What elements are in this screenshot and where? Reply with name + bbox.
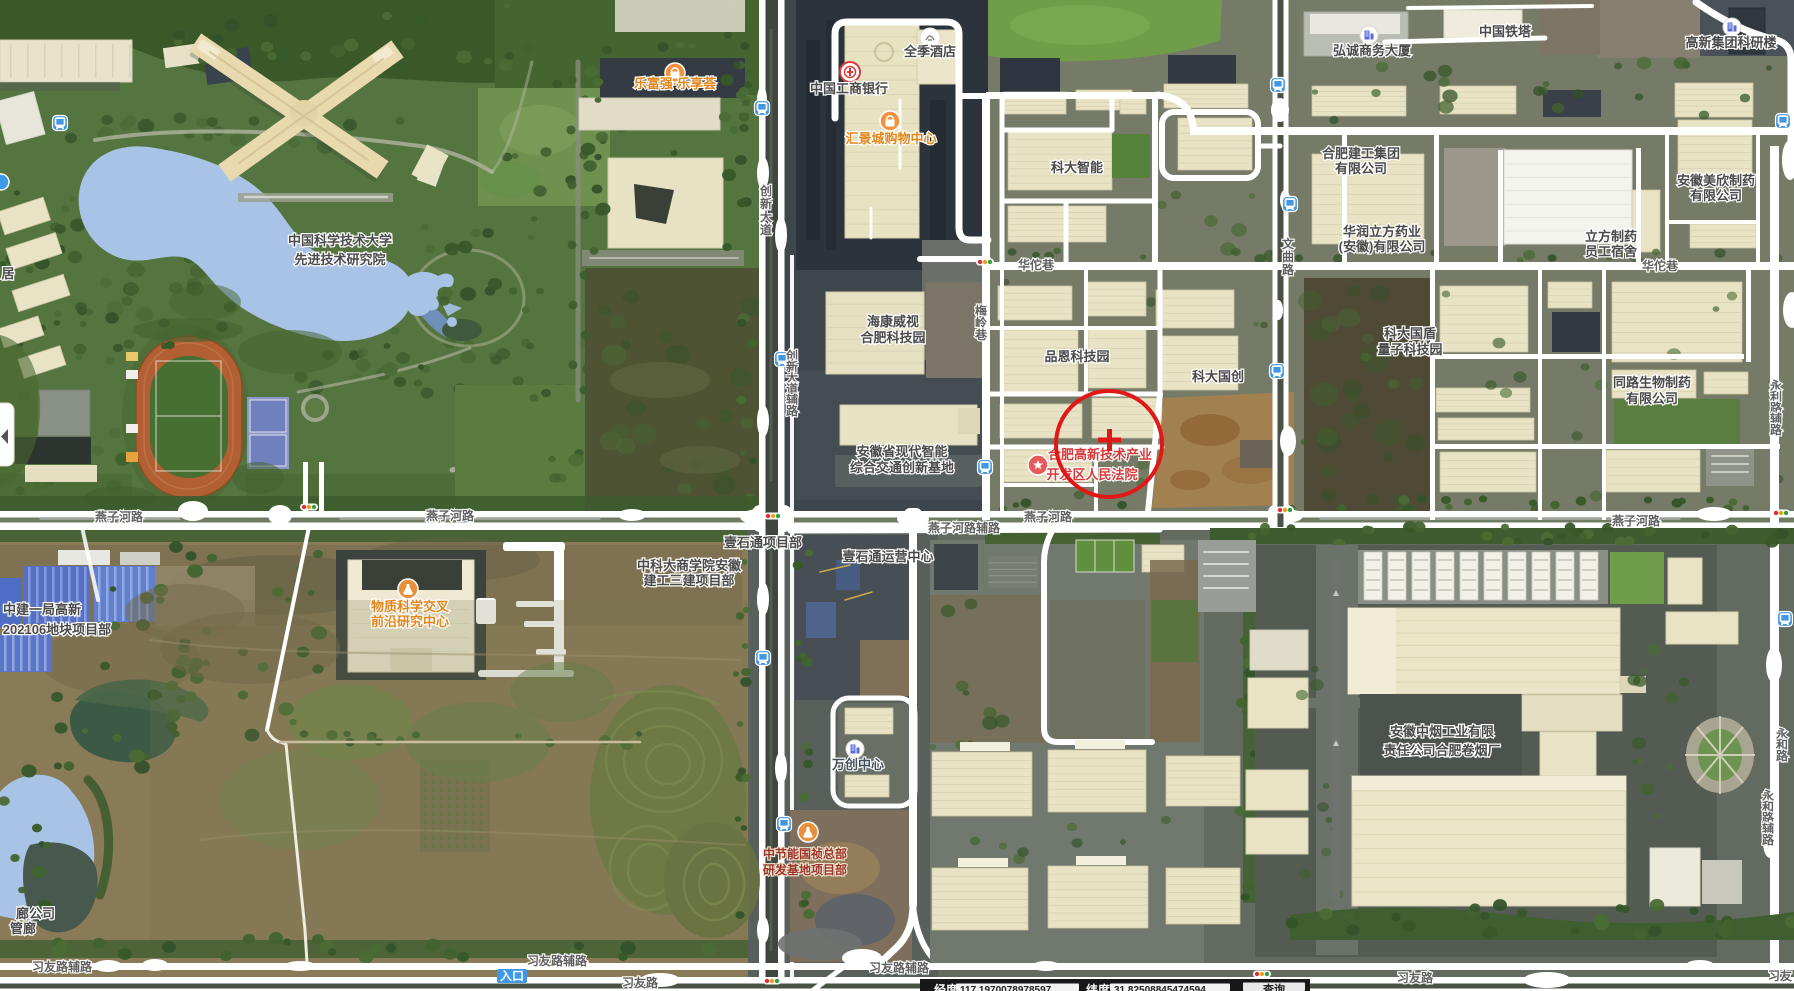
- svg-text:科大智能: 科大智能: [1051, 160, 1103, 175]
- svg-text:习友路: 习友路: [622, 975, 659, 990]
- svg-text:查询: 查询: [1263, 982, 1285, 991]
- svg-text:研发基地项目部: 研发基地项目部: [763, 862, 847, 877]
- svg-text:责任公司合肥卷烟厂: 责任公司合肥卷烟厂: [1383, 743, 1500, 758]
- svg-text:员工宿舍: 员工宿舍: [1585, 244, 1638, 259]
- svg-text:壹石通运营中心: 壹石通运营中心: [842, 549, 933, 564]
- svg-text:入口: 入口: [500, 969, 524, 983]
- svg-text:经度: 经度: [934, 982, 959, 991]
- svg-text:燕子河路: 燕子河路: [95, 509, 144, 524]
- svg-text:有限公司: 有限公司: [1335, 161, 1387, 176]
- svg-text:物质科学交叉: 物质科学交叉: [371, 599, 450, 614]
- svg-text:中国铁塔: 中国铁塔: [1479, 24, 1532, 39]
- svg-text:弘诚商务大厦: 弘诚商务大厦: [1333, 43, 1412, 58]
- svg-text:永利路辅路: 永利路辅路: [1769, 378, 1783, 437]
- svg-text:高新集团科研楼: 高新集团科研楼: [1685, 35, 1776, 50]
- svg-text:燕子河路: 燕子河路: [1024, 509, 1073, 524]
- svg-text:同路生物制药: 同路生物制药: [1613, 375, 1691, 390]
- svg-text:创新大道辅路: 创新大道辅路: [785, 348, 799, 418]
- svg-text:习友路辅路: 习友路辅路: [527, 953, 588, 968]
- svg-text:31.82508845474594: 31.82508845474594: [1114, 985, 1206, 991]
- svg-text:科大国盾: 科大国盾: [1384, 326, 1436, 341]
- svg-text:中国科学技术大学: 中国科学技术大学: [288, 233, 392, 248]
- svg-text:华佗巷: 华佗巷: [1642, 258, 1679, 273]
- svg-text:安徽美欣制药: 安徽美欣制药: [1677, 173, 1755, 188]
- svg-text:建工三建项目部: 建工三建项目部: [643, 573, 734, 588]
- svg-text:壹石通项目部: 壹石通项目部: [724, 535, 802, 550]
- svg-text:纬度: 纬度: [1086, 982, 1111, 991]
- svg-text:廊公司: 廊公司: [16, 906, 55, 921]
- svg-text:202106地块项目部: 202106地块项目部: [3, 622, 111, 637]
- svg-text:有限公司: 有限公司: [1626, 391, 1678, 406]
- svg-text:华佗巷: 华佗巷: [1018, 257, 1055, 272]
- svg-text:安徽中烟工业有限: 安徽中烟工业有限: [1390, 724, 1495, 739]
- svg-text:文曲路: 文曲路: [1282, 236, 1295, 277]
- svg-text:合肥建工集团: 合肥建工集团: [1322, 146, 1400, 161]
- svg-text:中节能国祯总部: 中节能国祯总部: [763, 846, 847, 861]
- svg-text:117.1970078978597: 117.1970078978597: [960, 985, 1052, 991]
- svg-text:先进技术研究院: 先进技术研究院: [294, 252, 385, 267]
- svg-text:汇景城购物中心: 汇景城购物中心: [845, 131, 936, 146]
- svg-text:有限公司: 有限公司: [1690, 188, 1742, 203]
- svg-text:梅岭巷: 梅岭巷: [974, 303, 988, 342]
- svg-text:中建一局高新: 中建一局高新: [3, 602, 81, 617]
- svg-text:华润立方药业: 华润立方药业: [1343, 224, 1421, 239]
- svg-text:科大国创: 科大国创: [1192, 369, 1244, 384]
- svg-text:品恩科技园: 品恩科技园: [1044, 349, 1109, 364]
- svg-text:前沿研究中心: 前沿研究中心: [371, 614, 449, 629]
- svg-text:永和路辅路: 永和路辅路: [1761, 788, 1775, 847]
- svg-text:乐富强·乐享荟: 乐富强·乐享荟: [634, 76, 717, 91]
- svg-text:燕子河路辅路: 燕子河路辅路: [928, 520, 1001, 535]
- svg-text:立方制药: 立方制药: [1585, 229, 1637, 244]
- svg-text:安徽省现代智能: 安徽省现代智能: [856, 444, 947, 459]
- svg-text:量子科技园: 量子科技园: [1377, 342, 1442, 357]
- svg-text:海康威视: 海康威视: [867, 314, 919, 329]
- svg-text:管廊: 管廊: [10, 921, 36, 936]
- svg-text:习友: 习友: [1768, 968, 1792, 983]
- svg-text:习友路辅路: 习友路辅路: [869, 960, 930, 975]
- svg-text:习友路: 习友路: [1397, 970, 1434, 985]
- svg-text:合肥高新技术产业: 合肥高新技术产业: [1048, 447, 1152, 462]
- svg-text:中国工商银行: 中国工商银行: [810, 81, 888, 96]
- svg-text:燕子河路: 燕子河路: [1612, 513, 1661, 528]
- svg-text:万创中心: 万创中心: [831, 757, 884, 772]
- svg-text:综合交通创新基地: 综合交通创新基地: [850, 460, 954, 475]
- svg-text:(安徽)有限公司: (安徽)有限公司: [1339, 239, 1426, 254]
- svg-text:创新大道: 创新大道: [759, 183, 772, 237]
- svg-text:习友路辅路: 习友路辅路: [32, 959, 93, 974]
- svg-text:燕子河路: 燕子河路: [426, 508, 475, 523]
- svg-text:中科大商学院安徽: 中科大商学院安徽: [637, 558, 742, 573]
- svg-text:居: 居: [1, 266, 14, 281]
- svg-text:合肥科技园: 合肥科技园: [860, 330, 925, 345]
- svg-text:永和路: 永和路: [1775, 726, 1789, 763]
- svg-text:全季酒店: 全季酒店: [903, 44, 956, 59]
